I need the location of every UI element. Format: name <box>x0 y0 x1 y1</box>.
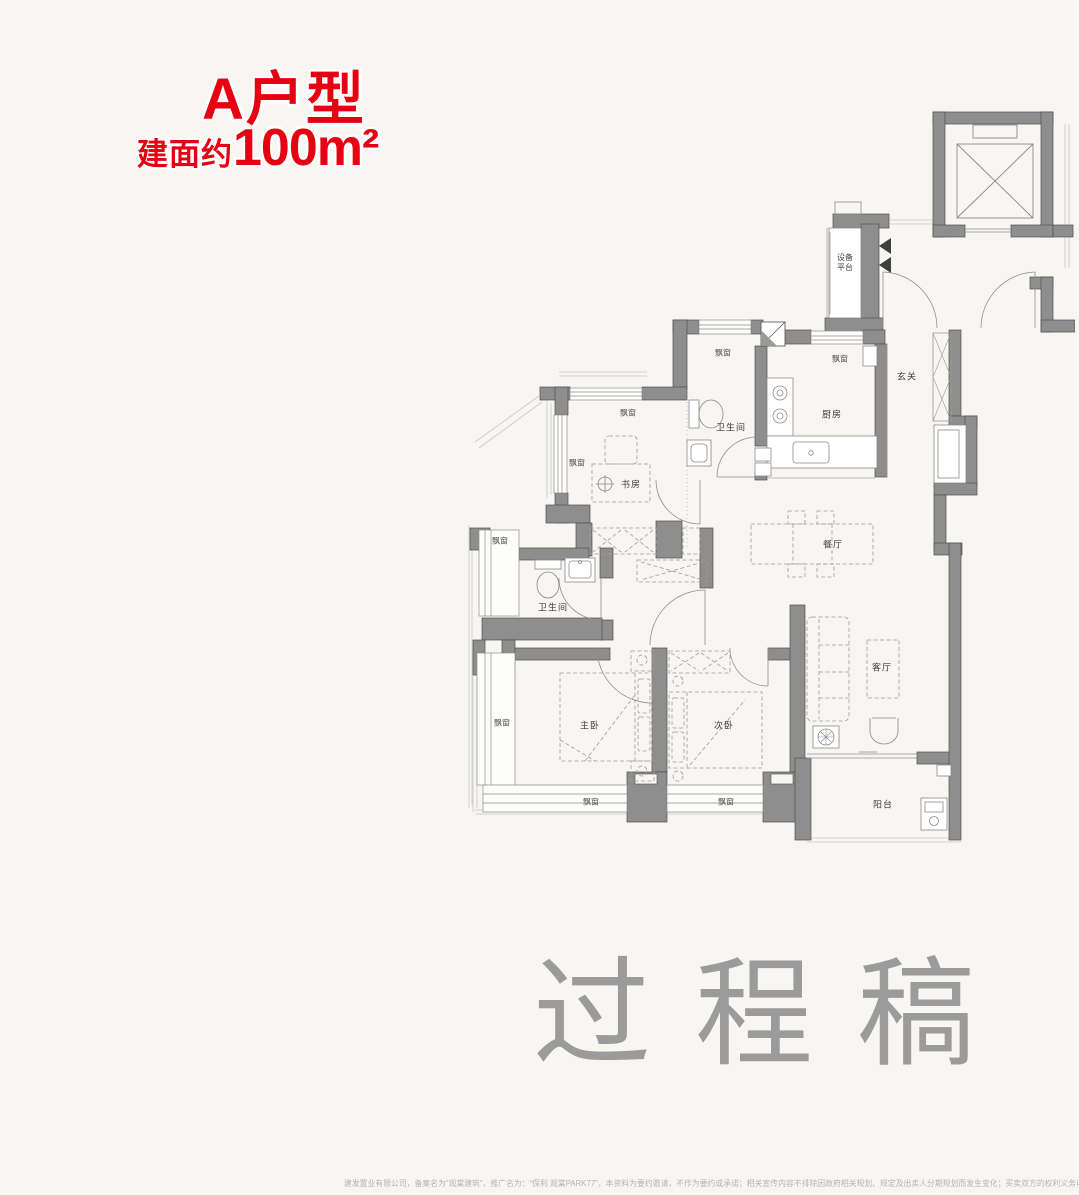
bay-window-label: 飘窗 <box>492 536 508 547</box>
room-label-entry: 玄关 <box>897 370 917 383</box>
ceiling-fan-icon <box>596 475 614 493</box>
area-line: 建面约 100m² <box>137 118 378 178</box>
room-label-study: 书房 <box>621 478 641 491</box>
area-value: 100m² <box>233 118 378 178</box>
bay-window-label: 飘窗 <box>715 348 731 359</box>
vent-hatch <box>879 238 891 273</box>
floor-plan-drawing <box>455 100 1075 850</box>
flue-icon <box>761 322 785 346</box>
bay-window-label: 飘窗 <box>569 458 585 469</box>
bay-window-label: 飘窗 <box>583 797 599 808</box>
room-label-bathroom-1: 卫生间 <box>716 421 746 434</box>
bay-window-label: 飘窗 <box>494 718 510 729</box>
room-label-bathroom-2: 卫生间 <box>538 601 568 614</box>
room-label-kitchen: 厨房 <box>822 408 842 421</box>
room-label-master-bedroom: 主卧 <box>580 719 600 732</box>
disclaimer-text: 建发置业有限公司，备案名为“观棠建筑”，推广名为：“保利 观棠PARK77”，本… <box>344 1178 1079 1189</box>
room-label-living: 客厅 <box>872 661 892 674</box>
room-label-equipment-platform: 设备 平台 <box>837 253 853 273</box>
fixtures <box>535 333 966 830</box>
watermark: 过程稿 <box>533 918 1019 1089</box>
floorplan-page: A户型 建面约 100m² <box>0 0 1079 1195</box>
floor-plan: 设备 平台 玄关 厨房 卫生间 书房 餐厅 卫生间 主卧 次卧 客厅 阳台 飘窗… <box>455 100 1075 850</box>
bay-window-label: 飘窗 <box>620 408 636 419</box>
room-label-dining: 餐厅 <box>823 538 843 551</box>
room-label-balcony: 阳台 <box>873 798 893 811</box>
bay-window-label: 飘窗 <box>832 354 848 365</box>
area-prefix: 建面约 <box>137 129 233 174</box>
room-label-second-bedroom: 次卧 <box>714 719 734 732</box>
bay-window-label: 飘窗 <box>718 797 734 808</box>
elevator-icon <box>957 125 1033 232</box>
